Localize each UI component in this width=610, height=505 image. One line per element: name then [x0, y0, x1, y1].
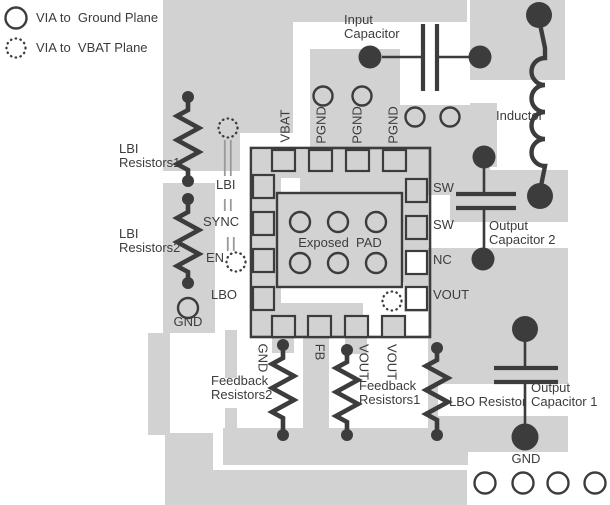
via-dot-outcap2-top — [473, 146, 496, 169]
pad-label-vout-b2: VOUT — [386, 344, 399, 380]
pad-pgnd-1 — [309, 150, 332, 171]
pad-pgnd-3 — [383, 150, 406, 171]
pcb-layout-diagram: VIA to Ground Plane VIA to VBAT Plane In… — [0, 0, 610, 505]
pad-label-sw-2: SW — [433, 218, 454, 232]
via-dot-inductor-top — [526, 2, 552, 28]
feedback-resistor-2 — [272, 345, 294, 435]
via-dot-incap-left — [359, 46, 382, 69]
pad-label-en: EN — [206, 251, 224, 265]
pad-label-gnd-b: GND — [257, 344, 270, 373]
via-dot-outcap1-top — [512, 316, 538, 342]
pad-label-pgnd-3: PGND — [387, 106, 400, 144]
pad-fb — [308, 316, 331, 337]
pad-label-vbat: VBAT — [279, 110, 292, 143]
input-capacitor-label: Input Capacitor — [344, 13, 400, 41]
via-dot-outcap2-bottom — [472, 248, 495, 271]
inductor-label: Inductor — [496, 109, 543, 123]
pad-vout-b1 — [345, 316, 368, 337]
pad-label-sync: SYNC — [203, 215, 239, 229]
pad-nc — [406, 251, 427, 274]
output-capacitor-1-label: Output Capacitor 1 — [531, 381, 597, 409]
output-capacitor-2-label: Output Capacitor 2 — [489, 219, 555, 247]
via-dot-incap-right — [469, 46, 492, 69]
feedback-resistors1-label: Feedback Resistors1 — [359, 379, 420, 407]
pad-label-pgnd-1: PGND — [315, 106, 328, 144]
pad-vout-b2 — [382, 316, 405, 337]
pad-label-nc: NC — [433, 253, 452, 267]
pad-label-pgnd-2: PGND — [351, 106, 364, 144]
exposed-pad-label: Exposed PAD — [280, 236, 400, 250]
pad-label-sw-1: SW — [433, 181, 454, 195]
pad-label-vout-b1: VOUT — [358, 344, 371, 380]
pad-label-vout-r: VOUT — [433, 288, 469, 302]
legend-ground-label: VIA to Ground Plane — [36, 11, 158, 25]
pad-label-lbo: LBO — [211, 288, 237, 302]
layout-canvas — [0, 0, 610, 505]
gnd-bottom-label: GND — [506, 452, 546, 466]
legend-vbat-via-icon — [7, 39, 26, 58]
legend-vbat-label: VIA to VBAT Plane — [36, 41, 148, 55]
pad-en — [253, 249, 274, 272]
pad-gnd — [272, 316, 295, 337]
feedback-resistors2-label: Feedback Resistors2 — [211, 374, 272, 402]
pad-vout-r — [406, 287, 427, 310]
lbi-resistors2-label: LBI Resistors2 — [119, 227, 180, 255]
lbi-resistors1-label: LBI Resistors1 — [119, 142, 180, 170]
pad-pgnd-2 — [346, 150, 369, 171]
pad-sw-2 — [406, 216, 427, 239]
legend-ground-via-icon — [6, 8, 27, 29]
via-dot-inductor-bottom — [527, 183, 553, 209]
pad-vbat — [272, 150, 295, 171]
via-dot-outcap1-bottom — [512, 424, 539, 451]
pad-label-fb: FB — [314, 344, 327, 361]
pad-sync — [253, 212, 274, 235]
pad-label-lbi: LBI — [216, 178, 236, 192]
pad-sw-1 — [406, 179, 427, 202]
lbo-resistor-label: LBO Resistor — [449, 395, 526, 409]
pad-lbo — [253, 287, 274, 310]
pad-lbi — [253, 175, 274, 198]
gnd-left-label: GND — [168, 315, 208, 329]
feedback-resistor-1 — [336, 350, 358, 435]
